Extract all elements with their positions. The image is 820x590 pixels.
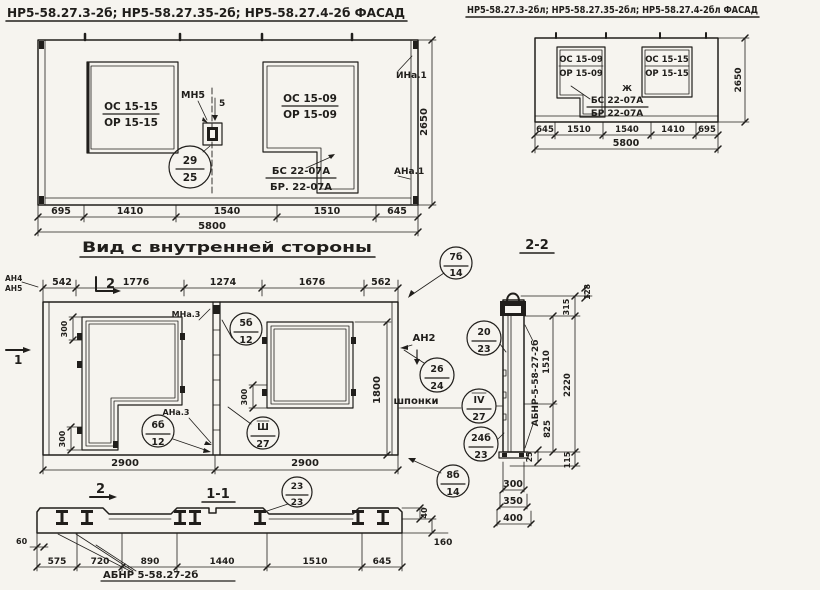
window-mark-top: ОС 15-15 (104, 101, 158, 113)
dim-text: 400 (503, 513, 523, 524)
leader-line (203, 146, 210, 152)
panel-label-vertical: АБНР-5-58-27-2б (530, 340, 541, 427)
label-ana3: АНа.3 (163, 408, 190, 417)
callout-top: 24б (471, 433, 491, 444)
callout-bot: 25 (183, 172, 198, 184)
beam-mark-top: БС 22-07А (591, 96, 643, 106)
callout-bot: 14 (446, 487, 460, 498)
dim-text: 2900 (291, 458, 319, 469)
dim-lines (67, 317, 267, 450)
callout-top: 29 (183, 155, 198, 167)
callout-23-23: 23 23 (264, 477, 312, 512)
leader-line (410, 273, 444, 296)
leader-line (404, 350, 424, 363)
corner-label-bot: АНа.1 (394, 167, 424, 177)
anchor-plate-hole (210, 130, 215, 138)
dim-text: 1510 (542, 350, 552, 374)
dim-bottom: 2900 2900 (40, 455, 401, 474)
section-mark-label: 2 (96, 482, 105, 497)
dim-text: 115 (563, 451, 572, 468)
panel-outline (38, 40, 418, 205)
window-frame (267, 322, 353, 408)
callout-top: 5б (239, 318, 253, 329)
inner-view-title: Вид с внутренней стороны (82, 240, 372, 256)
lifting-loop-icon (85, 34, 352, 40)
dim-text: 1410 (661, 125, 685, 135)
leader-line (189, 418, 211, 443)
dim-text: 25 (525, 452, 534, 462)
section-1-1: 1-1 23 23 60 575 720 890 1440 1510 645 (16, 477, 452, 581)
window-mark-bot: ОР 15-15 (645, 69, 689, 79)
section-title: 2-2 (525, 238, 549, 253)
arrowhead (400, 345, 408, 350)
leader-line (264, 504, 288, 512)
arrowhead (328, 154, 335, 159)
dim-text: 1510 (302, 557, 327, 567)
beam-mark-top: БС 22-07А (272, 166, 330, 177)
callout-top: 6б (151, 420, 165, 431)
dim-lines (43, 455, 398, 474)
dim-text: 1776 (123, 277, 150, 288)
beam-labels: БС 22-07А БР 22-07А (571, 86, 648, 119)
section-mark-label: 1 (14, 353, 22, 367)
window-frame-inner (271, 326, 349, 404)
anchor-label: МН5 (181, 90, 205, 101)
callout-top: 20 (477, 327, 491, 338)
arrowhead (109, 494, 117, 500)
window-mark-top: ОС 15-09 (559, 55, 603, 65)
dim-text: 720 (91, 557, 110, 567)
section-mark-2-bottom: 2 (90, 482, 117, 500)
dim-text: 825 (543, 420, 553, 438)
joint-anchor (213, 305, 220, 314)
dim-text: 2650 (734, 67, 744, 92)
section-title: 1-1 (206, 487, 230, 502)
dim-text: 2220 (563, 373, 573, 397)
hinge-marks (77, 333, 185, 448)
window-frame (82, 317, 182, 450)
callout-5b-12: 5б 12 (222, 313, 262, 346)
leader-line (198, 101, 207, 120)
leader-line (410, 459, 441, 473)
callout-7b-14: 7б 14 (408, 247, 472, 298)
dim-text: 160 (434, 538, 453, 548)
callout-24b-23: 24б 23 (464, 427, 504, 461)
dim-text: 1510 (567, 125, 591, 135)
dim-text: 300 (240, 388, 249, 405)
window-right: ОС 15-15 ОР 15-15 (642, 47, 692, 97)
dim-text: 562 (371, 277, 391, 288)
dim-text: 645 (536, 125, 554, 135)
section-2-2: 2-2 АБНР-5-58-27-2б 1510 825 25 315 2220… (494, 238, 592, 527)
arrowhead (408, 458, 416, 463)
callout-top: 7б (449, 252, 463, 263)
dim-text: 1800 (372, 376, 383, 404)
callout-8b-14: 8б 14 (408, 458, 469, 498)
inner-view: Вид с внутренней стороны 542 1776 1274 1… (5, 240, 506, 500)
dim-ticks (572, 285, 588, 469)
dim-text: 575 (48, 557, 67, 567)
dim-text: 315 (562, 298, 571, 315)
drawing-sheet: НР5-58.27.3-2б; НР5-58.27.35-2б; НР5-58.… (0, 0, 820, 590)
beam-mark-bot: БР. 22-07А (270, 182, 332, 193)
callout-bot: 24 (430, 381, 444, 392)
dim-text: 890 (141, 557, 160, 567)
window-mark-bot: ОР 15-09 (559, 69, 603, 79)
dim-bottom: 695 1410 1540 1510 645 5800 (35, 205, 421, 236)
window-right (262, 322, 356, 408)
callout-20-23: 20 23 (467, 321, 506, 355)
section-mark-2-top: 2 (96, 277, 121, 294)
dim-text: 1440 (209, 557, 234, 567)
callout-bot: 27 (472, 412, 485, 423)
label-an5: АН5 (5, 284, 22, 293)
facade-left: НР5-58.27.3-2б; НР5-58.27.35-2б; НР5-58.… (6, 5, 436, 236)
callout-bot: 23 (477, 344, 490, 355)
beam-mark-bot: БР 22-07А (591, 109, 643, 119)
callout-26-24: 26 24 (404, 350, 454, 392)
cap-channel-hole (505, 306, 521, 313)
leader-line (173, 439, 208, 451)
leader-line (398, 56, 412, 71)
dim-text: 1510 (314, 206, 341, 217)
dim-text: 300 (58, 430, 67, 447)
callout-top: IV (474, 395, 486, 406)
facade-left-title: НР5-58.27.3-2б; НР5-58.27.35-2б; НР5-58.… (7, 5, 405, 20)
anchor-channel-icons (56, 510, 389, 525)
label-an4: АН4 (5, 274, 22, 283)
gap-dim: 5 (219, 99, 225, 109)
hinge-marks (262, 337, 356, 396)
callout-iv-27: IV 27 (462, 389, 502, 423)
window-mark-bot: ОР 15-09 (283, 109, 337, 121)
callout-top: 26 (430, 364, 444, 375)
callout-bot: 14 (449, 268, 463, 279)
dim-total: 5800 (613, 138, 640, 149)
window-mark-top: ОС 15-09 (283, 93, 337, 105)
dim-text: 1540 (214, 206, 241, 217)
dim-height: 2650 (418, 37, 436, 208)
panel-layer-lines (508, 316, 511, 452)
corner-label-top: ИНа.1 (396, 71, 427, 81)
joint-ticks (213, 330, 220, 430)
callout-bot: 12 (151, 437, 164, 448)
leader-line (22, 282, 38, 287)
dim-text: 350 (503, 496, 523, 507)
anchor-mark: Ж (622, 84, 632, 93)
dim-text: 1274 (210, 277, 237, 288)
arrowhead (408, 290, 415, 298)
blueprint-canvas: НР5-58.27.3-2б; НР5-58.27.35-2б; НР5-58.… (0, 0, 820, 590)
dim-total: 5800 (198, 221, 226, 232)
dim-top: 542 1776 1274 1676 562 (40, 277, 401, 302)
dim-bottom: 645 1510 1540 1410 695 5800 (532, 122, 721, 153)
dim-60: 60 (16, 537, 28, 546)
dim-text: 542 (52, 277, 72, 288)
dim-text: 695 (698, 125, 716, 135)
callout-sh-27: Ш 27 (228, 407, 279, 450)
label-mna3: МНа.3 (172, 310, 201, 319)
window-mark-top: ОС 15-15 (645, 55, 689, 65)
leader-line (199, 309, 210, 320)
dim-text: 128 (583, 284, 592, 300)
beam-labels: БС 22-07А БР. 22-07А (266, 154, 336, 193)
dim-widths: 300 350 400 (494, 462, 534, 527)
section-mark-label: 2 (106, 277, 115, 292)
base-marks (502, 453, 524, 457)
leader-line (571, 86, 590, 99)
arrowhead (212, 115, 218, 121)
callout-top: Ш (257, 422, 269, 433)
callout-29-25: 29 25 (169, 146, 211, 188)
dim-text: 645 (373, 557, 392, 567)
callout-bot: 23 (474, 450, 487, 461)
facade-right: НР5-58.27.3-2бл; НР5-58.27.35-2бл; НР5-5… (466, 5, 759, 153)
dim-text: 2650 (419, 108, 430, 136)
callout-bot: 12 (239, 335, 252, 346)
dim-text: 1676 (299, 277, 326, 288)
panel-joint (213, 302, 220, 455)
label-an2: АН2 (412, 333, 435, 344)
dim-1800: 1800 (355, 319, 391, 458)
window-mark-bot: ОР 15-15 (104, 117, 158, 129)
dim-text: 300 (503, 479, 523, 490)
window-left: ОС 15-15 ОР 15-15 (87, 62, 178, 153)
window-frame-inner2 (274, 329, 346, 401)
callout-top: 23 (291, 482, 304, 492)
dim-right-end: 40 160 (402, 505, 452, 548)
dim-text: 1540 (615, 125, 639, 135)
dim-text: 1410 (117, 206, 144, 217)
label-shponki: шпонки (393, 396, 438, 407)
dim-text: 645 (387, 206, 407, 217)
dim-height: 2650 (718, 35, 749, 125)
panel-label: АБНР 5-58.27-2б (103, 569, 198, 581)
dim-bottom: 575 720 890 1440 1510 645 (34, 533, 405, 571)
dim-text: 300 (60, 320, 69, 337)
facade-right-title: НР5-58.27.3-2бл; НР5-58.27.35-2бл; НР5-5… (467, 5, 758, 16)
arrowhead (203, 448, 211, 453)
dim-text: 40 (420, 507, 429, 519)
leader-line (228, 407, 251, 424)
callout-bot: 27 (256, 439, 269, 450)
dim-ticks (68, 314, 256, 453)
dim-text: 695 (51, 206, 71, 217)
panel-corner-plates (39, 41, 418, 204)
callout-6b-12: 6б 12 (142, 415, 211, 453)
section-mark-1-left: 1 (6, 347, 31, 367)
callout-bot: 23 (291, 498, 304, 508)
arrowhead (23, 347, 31, 353)
window-left (77, 317, 185, 450)
callout-top: 8б (446, 470, 460, 481)
panel-edge-lines (45, 40, 411, 205)
dim-text: 2900 (111, 458, 139, 469)
